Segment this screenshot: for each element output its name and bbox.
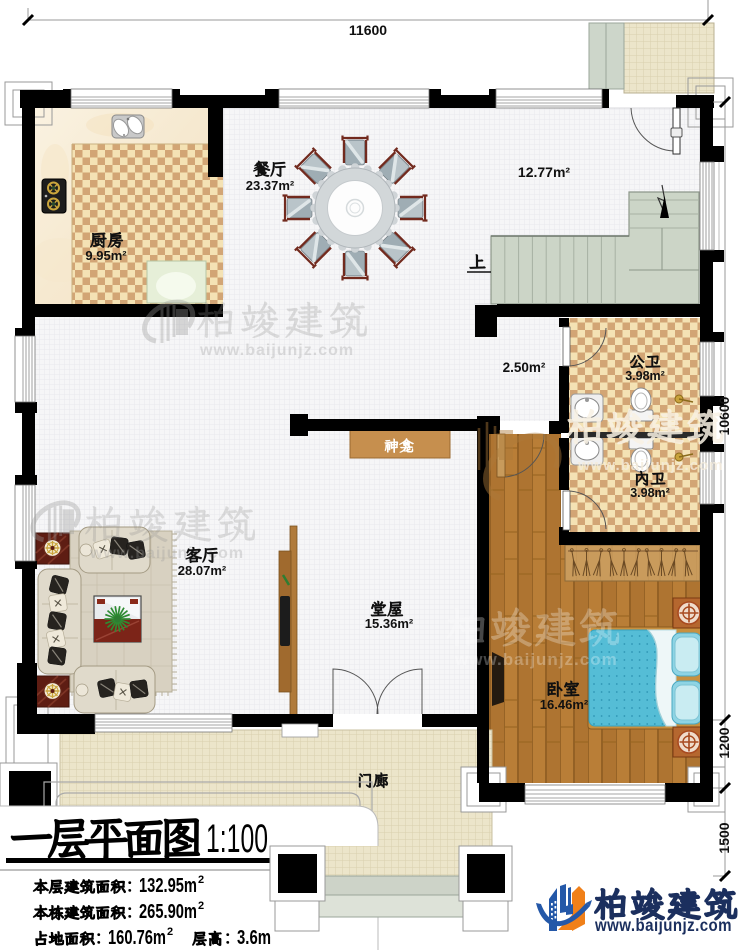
svg-text:3.98m²: 3.98m² xyxy=(630,486,670,500)
svg-text:2: 2 xyxy=(198,900,204,912)
svg-text:www.baijunjz.com: www.baijunjz.com xyxy=(577,457,723,474)
svg-text:265.90m: 265.90m xyxy=(139,901,197,923)
svg-text:132.95m: 132.95m xyxy=(139,875,197,897)
svg-text:11600: 11600 xyxy=(349,22,387,38)
svg-text:www.baijunjz.com: www.baijunjz.com xyxy=(594,915,732,935)
svg-text:28.07m²: 28.07m² xyxy=(178,563,227,578)
svg-text:www.baijunjz.com: www.baijunjz.com xyxy=(199,342,354,359)
svg-text:www.baijunjz.com: www.baijunjz.com xyxy=(454,650,618,669)
svg-text:23.37m²: 23.37m² xyxy=(246,178,295,193)
svg-text:1200: 1200 xyxy=(716,727,732,758)
svg-text:www.baijunjz.com: www.baijunjz.com xyxy=(89,545,244,562)
svg-text:9.95m²: 9.95m² xyxy=(85,248,127,263)
svg-text:2: 2 xyxy=(198,874,204,886)
svg-text:3.6m: 3.6m xyxy=(237,927,271,949)
svg-text:3.98m²: 3.98m² xyxy=(625,369,665,383)
svg-text:2.50m²: 2.50m² xyxy=(503,360,546,375)
svg-text:1:100: 1:100 xyxy=(206,817,268,861)
svg-text:2: 2 xyxy=(167,926,173,938)
svg-text:12.77m²: 12.77m² xyxy=(518,164,570,180)
svg-text:16.46m²: 16.46m² xyxy=(540,697,589,712)
svg-text:15.36m²: 15.36m² xyxy=(365,616,414,631)
svg-text:1500: 1500 xyxy=(716,822,732,853)
svg-text:160.76m: 160.76m xyxy=(108,927,166,949)
